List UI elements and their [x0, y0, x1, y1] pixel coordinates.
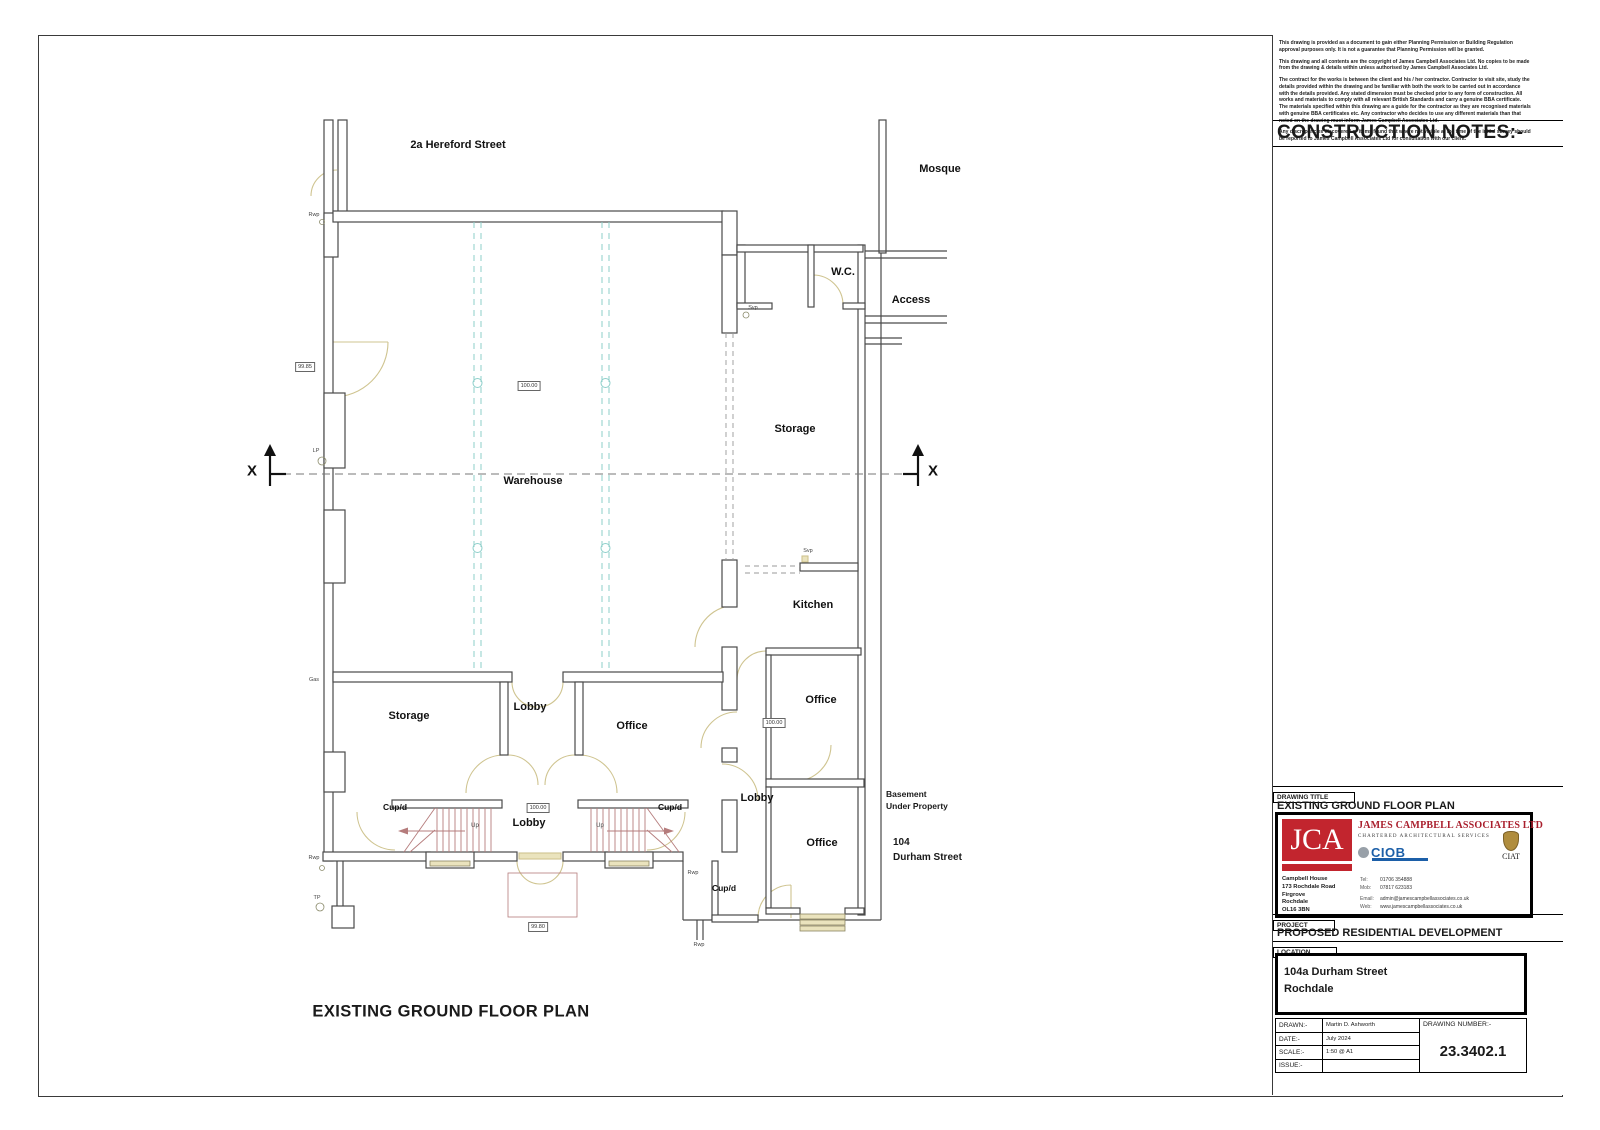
- tel-label: Tel:: [1360, 877, 1380, 885]
- company-address: Campbell House 173 Rochdale Road Firgrov…: [1282, 876, 1335, 915]
- disclaimer-paragraph: The contract for the works is between th…: [1279, 77, 1531, 124]
- tag-tp: TP: [313, 895, 320, 901]
- tag-rwp-bottom-right: Rwp: [693, 942, 704, 948]
- contact-web: Web:www.jamescampbellassociates.co.uk: [1360, 904, 1469, 912]
- neighbour-note-line1: 104: [893, 835, 962, 850]
- company-logo: JCA: [1282, 819, 1352, 861]
- tag-gas: Gas: [309, 677, 319, 683]
- drawing-number-label: DRAWING NUMBER:-: [1423, 1021, 1491, 1028]
- room-label-lobby-center: Lobby: [514, 701, 547, 713]
- field-date-label: DATE:-: [1276, 1032, 1323, 1045]
- room-label-mosque: Mosque: [919, 163, 961, 175]
- room-label-office-mid: Office: [805, 694, 836, 706]
- tag-svp-top: Svp: [748, 305, 757, 311]
- level-badge-entrance-hall: 100.00: [527, 803, 550, 813]
- title-panel: This drawing is provided as a document t…: [1272, 35, 1563, 1095]
- section-markers: [264, 444, 924, 486]
- stair-up-label-right: Up: [596, 823, 604, 829]
- email-value: admin@jamescampbellassociates.co.uk: [1380, 896, 1469, 902]
- ciat-logo: CIAT: [1498, 831, 1524, 861]
- tag-lp: LP: [313, 448, 320, 454]
- hidden-wall-lines: [726, 333, 800, 573]
- drawing-title-value: EXISTING GROUND FLOOR PLAN: [1277, 800, 1455, 812]
- mob-value: 07817 623183: [1380, 885, 1412, 891]
- contact-tel: Tel:01706 354888: [1360, 877, 1469, 885]
- location-box: 104a Durham Street Rochdale: [1275, 953, 1527, 1015]
- field-drawn-value: Martin D. Ashworth: [1323, 1019, 1420, 1032]
- field-issue-label: ISSUE:-: [1276, 1059, 1323, 1072]
- email-label: Email:: [1360, 896, 1380, 904]
- drawing-number-value: 23.3402.1: [1420, 1043, 1526, 1060]
- entrance-porch: [508, 873, 577, 917]
- room-label-warehouse: Warehouse: [504, 475, 563, 487]
- contact-email: Email:admin@jamescampbellassociates.co.u…: [1360, 896, 1469, 904]
- web-value: www.jamescampbellassociates.co.uk: [1380, 904, 1462, 910]
- address-line: 173 Rochdale Road: [1282, 884, 1335, 892]
- web-label: Web:: [1360, 904, 1380, 912]
- room-label-storage-right: Storage: [775, 423, 816, 435]
- disclaimer-paragraph: This drawing and all contents are the co…: [1279, 59, 1531, 73]
- location-line: Rochdale: [1284, 981, 1524, 998]
- section-marker-x-left: X: [247, 463, 257, 480]
- basement-note: Basement Under Property: [886, 788, 948, 813]
- address-line: Firgrove: [1282, 892, 1335, 900]
- basement-note-line2: Under Property: [886, 800, 948, 812]
- drawing-info-table: DRAWN:- Martin D. Ashworth DRAWING NUMBE…: [1275, 1018, 1527, 1073]
- company-contacts: Tel:01706 354888 Mob:07817 623183 Email:…: [1360, 877, 1469, 911]
- location-line: 104a Durham Street: [1284, 964, 1524, 981]
- tag-rwp-bottom-left: Rwp: [308, 855, 319, 861]
- company-name: JAMES CAMPBELL ASSOCIATES LTD: [1358, 820, 1543, 831]
- room-label-access: Access: [892, 294, 931, 306]
- field-scale-label: SCALE:-: [1276, 1045, 1323, 1058]
- plan-caption: EXISTING GROUND FLOOR PLAN: [312, 1003, 589, 1022]
- room-label-office-bottom-right: Office: [806, 837, 837, 849]
- room-label-office-bottom: Office: [616, 720, 647, 732]
- tag-svp-kitchen: Svp: [803, 548, 812, 554]
- basement-note-line1: Basement: [886, 788, 948, 800]
- disclaimer-paragraph: This drawing is provided as a document t…: [1279, 40, 1531, 54]
- mob-label: Mob:: [1360, 885, 1380, 893]
- tag-rwp-top: Rwp: [308, 212, 319, 218]
- stair-up-label-left: Up: [471, 823, 479, 829]
- street-label: 2a Hereford Street: [410, 139, 505, 151]
- neighbour-note: 104 Durham Street: [893, 835, 962, 865]
- ciob-subline: [1372, 858, 1428, 861]
- ciat-crest-icon: [1503, 831, 1519, 851]
- staircase-left: [398, 808, 491, 852]
- drawing-title-strip: DRAWING TITLE: [1273, 786, 1563, 798]
- room-label-lobby-right: Lobby: [741, 792, 774, 804]
- address-line: Campbell House: [1282, 876, 1335, 884]
- room-label-kitchen: Kitchen: [793, 599, 833, 611]
- field-scale-value: 1:50 @ A1: [1323, 1045, 1420, 1058]
- drawing-sheet: 2a Hereford Street Mosque W.C. Access St…: [0, 0, 1600, 1130]
- project-strip: PROJECT: [1273, 914, 1563, 926]
- column-grid-lines: [473, 222, 610, 672]
- level-badge-outside: 99.80: [528, 922, 548, 932]
- tag-rwp-right: Rwp: [687, 870, 698, 876]
- location-strip: LOCATION: [1273, 941, 1563, 953]
- level-badge-warehouse: 100.00: [518, 381, 541, 391]
- field-drawn-label: DRAWN:-: [1276, 1019, 1323, 1032]
- ciat-wordmark: CIAT: [1498, 852, 1524, 861]
- walls: [323, 120, 947, 940]
- construction-notes-heading: CONSTRUCTION NOTES:-: [1273, 120, 1563, 147]
- level-badge-left-wall: 99.85: [295, 362, 315, 372]
- tel-value: 01706 354888: [1380, 877, 1412, 883]
- company-logo-bar: [1282, 864, 1352, 871]
- company-block: JCA JAMES CAMPBELL ASSOCIATES LTD CHARTE…: [1275, 812, 1533, 918]
- contact-mob: Mob:07817 623183: [1360, 885, 1469, 893]
- level-badge-office: 100.00: [763, 718, 786, 728]
- neighbour-note-line2: Durham Street: [893, 850, 962, 865]
- address-line: Rochdale: [1282, 899, 1335, 907]
- room-label-lobby-entrance: Lobby: [513, 817, 546, 829]
- room-label-cupd-bottom: Cup/d: [712, 883, 736, 893]
- room-label-wc: W.C.: [831, 266, 855, 278]
- room-label-storage-bottom: Storage: [389, 710, 430, 722]
- field-date-value: July 2024: [1323, 1032, 1420, 1045]
- ciob-emblem-icon: [1358, 847, 1369, 858]
- drawing-number-cell: DRAWING NUMBER:- 23.3402.1: [1420, 1019, 1526, 1072]
- company-tagline: CHARTERED ARCHITECTURAL SERVICES: [1358, 834, 1490, 839]
- field-issue-value: [1323, 1059, 1420, 1072]
- section-marker-x-right: X: [928, 463, 938, 480]
- room-label-cupd-left: Cup/d: [383, 802, 407, 812]
- project-value: PROPOSED RESIDENTIAL DEVELOPMENT: [1277, 927, 1502, 939]
- room-label-cupd-right: Cup/d: [658, 802, 682, 812]
